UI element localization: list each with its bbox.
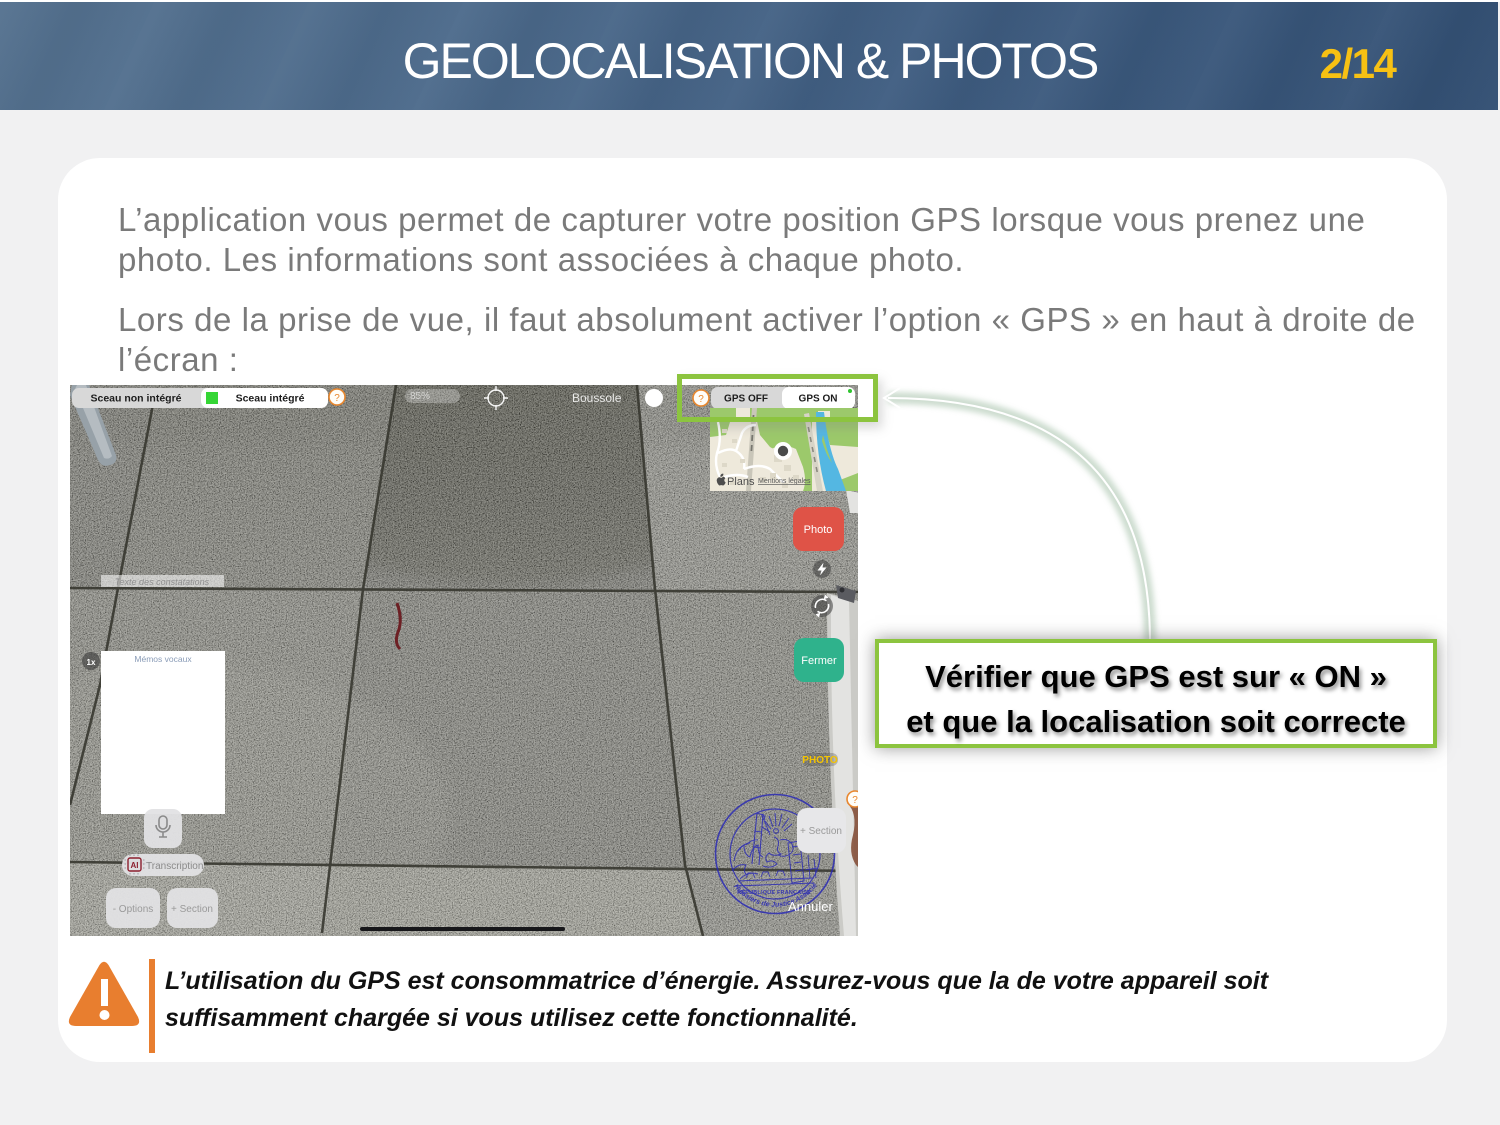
svg-text:PHOTO: PHOTO — [802, 755, 838, 766]
svg-text:1x: 1x — [87, 658, 96, 667]
svg-text:Annuler: Annuler — [788, 899, 833, 914]
svg-text:- Options: - Options — [113, 904, 154, 915]
svg-text:Mémos vocaux: Mémos vocaux — [134, 654, 192, 664]
svg-text:AI: AI — [131, 861, 139, 870]
svg-text:Photo: Photo — [804, 524, 833, 536]
svg-text:Boussole: Boussole — [572, 391, 622, 405]
svg-text:Plans: Plans — [727, 476, 755, 488]
svg-text:85%: 85% — [410, 391, 430, 402]
svg-text:Mentions légales: Mentions légales — [758, 478, 811, 485]
svg-text:+ Section: + Section — [171, 904, 213, 915]
svg-text:Sceau intégré: Sceau intégré — [236, 393, 305, 405]
svg-text:?: ? — [852, 795, 858, 806]
svg-text:?: ? — [334, 393, 340, 404]
svg-text:+ Section: + Section — [800, 826, 842, 837]
svg-text:Transcription: Transcription — [146, 861, 203, 872]
svg-text:Texte des constatations: Texte des constatations — [115, 577, 210, 587]
svg-text:Fermer: Fermer — [801, 655, 837, 667]
svg-text:Sceau non intégré: Sceau non intégré — [90, 393, 181, 405]
